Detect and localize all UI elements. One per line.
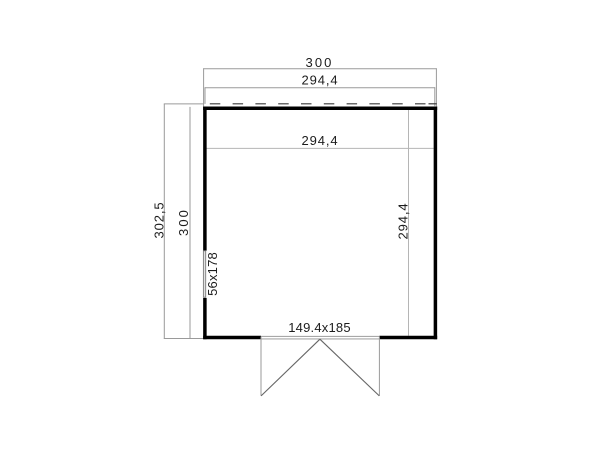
- svg-text:294,4: 294,4: [396, 202, 411, 239]
- svg-text:56x178: 56x178: [205, 252, 220, 296]
- svg-text:294,4: 294,4: [301, 73, 338, 88]
- svg-text:149.4x185: 149.4x185: [288, 320, 351, 335]
- svg-text:294,4: 294,4: [301, 133, 338, 148]
- svg-text:300: 300: [176, 208, 191, 236]
- svg-text:300: 300: [306, 55, 334, 70]
- svg-text:302,5: 302,5: [151, 201, 166, 238]
